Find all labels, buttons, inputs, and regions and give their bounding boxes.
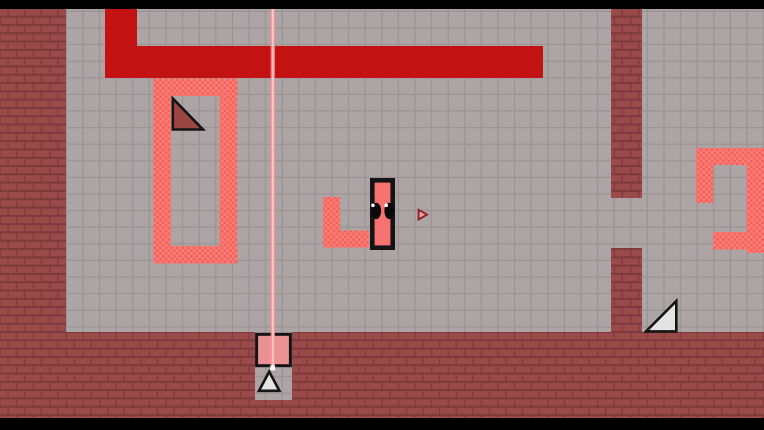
game-scene	[0, 0, 764, 430]
player-character	[371, 180, 394, 247]
game-viewport[interactable]	[0, 0, 764, 430]
red-pipe-vertical	[105, 9, 137, 49]
hazard-hook-stub	[713, 232, 764, 250]
laser-end-dot	[270, 366, 275, 371]
brick-pillar-lower	[611, 248, 642, 332]
laser-beam	[270, 9, 275, 370]
laser-beam-core	[272, 9, 274, 368]
brick-pillar-upper	[611, 9, 642, 198]
red-pipe-horizontal	[105, 46, 543, 78]
hazard-hook-left	[696, 148, 713, 203]
hazard-l-horizontal	[323, 231, 369, 248]
hazard-ring-right	[220, 79, 238, 264]
left-brick-wall	[0, 9, 66, 418]
player-eye-glint-right	[384, 204, 388, 208]
player-eye-glint-left	[371, 204, 375, 208]
floor-bricks	[0, 332, 764, 418]
hazard-ring-left	[154, 79, 172, 264]
letterbox-top	[0, 0, 764, 9]
letterbox-bottom	[0, 418, 764, 430]
passage-gap-tiles	[611, 198, 642, 248]
